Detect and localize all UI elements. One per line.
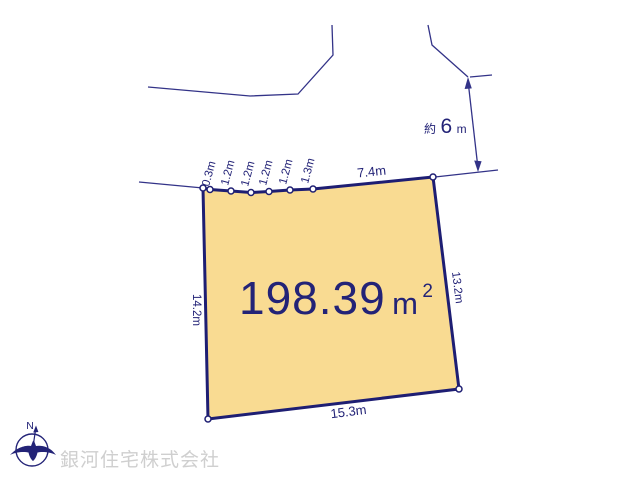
compass: N xyxy=(10,420,56,466)
vertex-marker xyxy=(207,187,213,193)
dimension-label-segment-5: 1.2m xyxy=(277,158,295,186)
dimension-label-segment-3: 1.2m xyxy=(239,160,257,188)
dimension-label-segment-2: 1.2m xyxy=(219,159,237,187)
road-boundary-tick-bottom xyxy=(435,170,498,177)
arrowhead-up-icon xyxy=(465,77,472,89)
arrowhead-down-icon xyxy=(474,161,481,173)
vertex-marker xyxy=(430,174,436,180)
road-width-unit: m xyxy=(457,122,467,136)
road-boundary-line-left xyxy=(139,182,203,188)
dimension-label-segment-4: 1.2m xyxy=(257,159,275,187)
dimension-label-segment-1: 0.3m xyxy=(200,160,218,188)
road-width-value: 6 xyxy=(440,115,452,138)
road-width-arrow xyxy=(465,77,482,172)
road-width-prefix: 約 xyxy=(424,121,436,136)
vertex-marker xyxy=(228,188,234,194)
dimension-label-top: 7.4m xyxy=(356,163,386,181)
vertex-marker xyxy=(266,189,272,195)
vertex-marker xyxy=(287,187,293,193)
road-boundary-line-upper xyxy=(148,25,333,96)
vertex-marker xyxy=(456,386,462,392)
company-watermark: 銀河住宅株式会社 xyxy=(60,449,220,471)
north-arrow-head-icon xyxy=(33,426,38,433)
area-value: 198.39 xyxy=(239,272,386,324)
dimension-label-segment-6: 1.3m xyxy=(299,157,317,185)
road-boundary-line-upper-right xyxy=(428,25,468,77)
dimension-label-left: 14.2m xyxy=(190,294,202,326)
dimension-label-bottom: 15.3m xyxy=(330,402,368,421)
road-width-arrow-line xyxy=(469,86,478,163)
site-plan-canvas: 約 6 m 198.39 m 2 0.3m 1.2m 1.2m 1.2m 1.2… xyxy=(0,0,640,480)
vertex-marker xyxy=(310,186,316,192)
area-superscript: 2 xyxy=(422,281,433,302)
vertex-marker xyxy=(205,416,211,422)
vertex-marker xyxy=(200,185,206,191)
road-width-label: 約 6 m xyxy=(424,115,467,138)
land-plot-diagram: 約 6 m 198.39 m 2 0.3m 1.2m 1.2m 1.2m 1.2… xyxy=(0,0,640,480)
vertex-marker xyxy=(248,190,254,196)
area-unit: m xyxy=(392,286,418,321)
road-boundary-tick-top xyxy=(470,75,492,77)
dimension-label-right: 13.2m xyxy=(449,271,465,304)
compass-north-label: N xyxy=(26,420,34,432)
